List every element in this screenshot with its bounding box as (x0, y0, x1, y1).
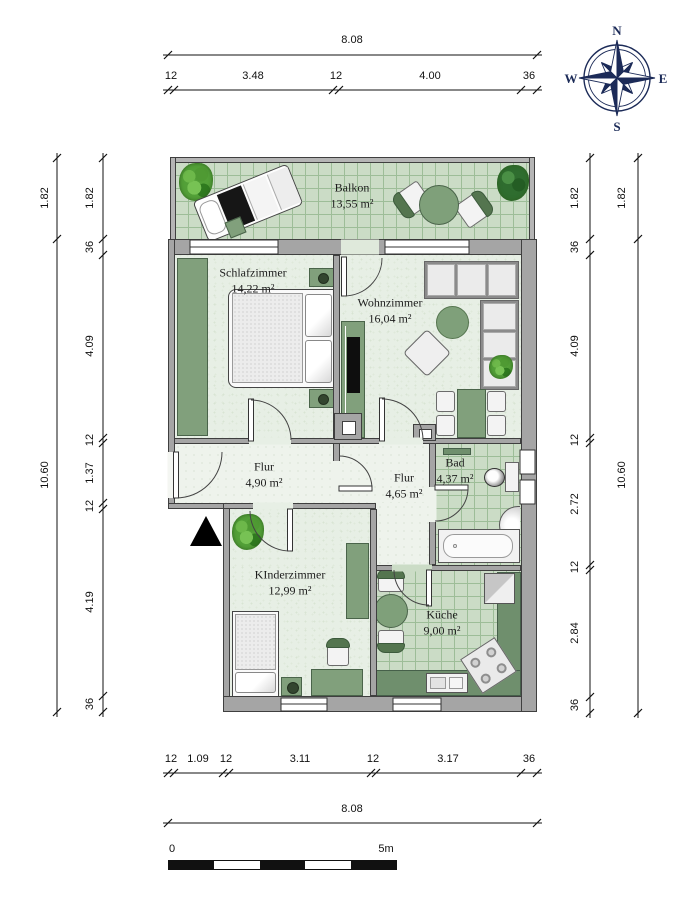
shaft-block (334, 413, 362, 440)
room-label-flur-rechts: Flur 4,65 m² (386, 470, 423, 501)
dining-chair (487, 415, 506, 436)
dim-bottom-seg: 12 (367, 753, 379, 765)
dim-left-outer: 10.60 (39, 461, 51, 489)
wall-kueche-top (376, 565, 521, 571)
dim-top-seg: 3.48 (242, 70, 263, 82)
kinder-wardrobe (346, 543, 369, 619)
scale-segment (169, 861, 214, 869)
room-label-wohnzimmer: Wohnzimmer 16,04 m² (357, 295, 422, 326)
wall-kinder-kueche (370, 509, 377, 696)
dim-left-inner: 36 (84, 241, 96, 253)
round-rug (436, 306, 469, 339)
room-area: 16,04 m² (357, 311, 422, 327)
wall-left-upper (168, 239, 175, 509)
wall-schlaf-wohn (333, 255, 340, 439)
dim-top-seg: 4.00 (419, 70, 440, 82)
dim-left-inner: 1.37 (84, 462, 96, 483)
room-label-bad: Bad 4,37 m² (437, 455, 474, 486)
nightstand (309, 268, 335, 287)
room-label-kueche: Küche 9,00 m² (424, 607, 461, 638)
room-name: Küche (424, 607, 461, 623)
compass-e-label: E (659, 71, 668, 87)
dim-top-total: 8.08 (341, 34, 362, 46)
dim-top-seg: 12 (330, 70, 342, 82)
sofa-cushion (427, 264, 455, 296)
scale-segment (351, 861, 396, 869)
dim-left-inner: 12 (84, 434, 96, 446)
sofa-cushion (483, 303, 516, 330)
compass-w-label: W (565, 71, 578, 87)
kitchen-chair (378, 572, 404, 592)
room-name: Wohnzimmer (357, 295, 422, 311)
nightstand (309, 389, 335, 408)
wall-flur-step (168, 503, 229, 509)
wall-bottom (223, 696, 537, 712)
compass-s-label: S (613, 119, 620, 135)
shaft-opening (419, 429, 432, 439)
single-bed (232, 611, 279, 697)
floorplan-canvas: Balkon 13,55 m² Schlafzimmer 14,22 m² Wo… (0, 0, 700, 910)
room-name: Flur (386, 470, 423, 486)
dim-top-seg: 36 (523, 70, 535, 82)
desk (311, 669, 363, 696)
kitchen-table (374, 594, 408, 628)
dim-bottom-seg: 1.09 (187, 753, 208, 765)
room-area: 14,22 m² (219, 281, 286, 297)
wall-right (521, 239, 537, 712)
lamp (318, 394, 329, 405)
wall-flur-divider (333, 443, 340, 503)
room-area: 4,90 m² (246, 475, 283, 491)
room-name: Balkon (331, 180, 374, 196)
corner-sofa-top (424, 261, 519, 299)
dim-right-inner: 36 (569, 699, 581, 711)
room-name: Flur (246, 459, 283, 475)
dim-right-outer: 1.82 (616, 187, 628, 208)
double-bed (228, 289, 336, 388)
flur-rechts-floor-b (376, 503, 429, 565)
dining-table (457, 389, 486, 438)
room-label-schlafzimmer: Schlafzimmer 14,22 m² (219, 265, 286, 296)
dim-bottom-seg: 36 (523, 753, 535, 765)
room-label-flur-links: Flur 4,90 m² (246, 459, 283, 490)
room-area: 9,00 m² (424, 623, 461, 639)
chair-back (377, 643, 405, 653)
kitchen-chair (378, 630, 404, 650)
sofa-cushion (488, 264, 516, 296)
dim-top-seg: 12 (165, 70, 177, 82)
dim-left-inner: 12 (84, 500, 96, 512)
sofa-cushion (457, 264, 485, 296)
dim-bottom-seg: 12 (165, 753, 177, 765)
toilet-bowl (484, 468, 505, 487)
towel-rail (443, 448, 471, 455)
dim-right-outer: 10.60 (616, 461, 628, 489)
room-name: KInderzimmer (255, 567, 326, 583)
wardrobe (177, 258, 208, 436)
scale-segment (260, 861, 305, 869)
bed-mattress (235, 614, 276, 670)
balcony-table (419, 185, 459, 225)
sink-basin (430, 677, 446, 689)
wall-bad-left (429, 443, 436, 565)
room-area: 4,37 m² (437, 471, 474, 487)
dim-bottom-seg: 3.11 (290, 753, 311, 765)
compass-n-label: N (612, 23, 621, 39)
dim-left-inner: 1.82 (84, 187, 96, 208)
shaft-opening (342, 421, 356, 435)
dim-right-inner: 2.72 (569, 493, 581, 514)
dining-chair (487, 391, 506, 412)
wall-left-lower (223, 503, 230, 712)
dim-right-inner: 36 (569, 241, 581, 253)
bathtub-drain (453, 544, 457, 548)
toilet-tank (505, 462, 519, 492)
dim-left-outer: 1.82 (39, 187, 51, 208)
compass-rose-icon (579, 40, 655, 116)
dim-left-inner: 4.19 (84, 591, 96, 612)
room-name: Schlafzimmer (219, 265, 286, 281)
bed-pillow (305, 294, 332, 337)
bed-pillow (305, 340, 332, 383)
balcony-railing-right (529, 157, 535, 243)
balcony-railing-top (170, 157, 535, 163)
room-label-kinderzimmer: KInderzimmer 12,99 m² (255, 567, 326, 598)
wall-top (168, 239, 537, 255)
fridge (484, 573, 515, 604)
dim-right-inner: 4.09 (569, 335, 581, 356)
tv (347, 337, 360, 393)
shaft-block (413, 424, 436, 441)
balcony-railing-left (170, 157, 176, 243)
dining-chair (436, 415, 455, 436)
burner (484, 645, 498, 659)
dim-right-inner: 12 (569, 434, 581, 446)
sink-basin (449, 677, 463, 689)
dim-left-inner: 4.09 (84, 335, 96, 356)
bathtub (438, 529, 520, 563)
room-label-balkon: Balkon 13,55 m² (331, 180, 374, 211)
scale-end-label: 5m (378, 843, 393, 855)
desk-chair (327, 641, 349, 666)
scale-segment (305, 861, 350, 869)
scale-segment (214, 861, 259, 869)
dim-bottom-seg: 3.17 (437, 753, 458, 765)
scale-bar (168, 860, 397, 870)
room-name: Bad (437, 455, 474, 471)
bed-mattress (232, 293, 303, 383)
dim-right-inner: 1.82 (569, 187, 581, 208)
burner (495, 661, 509, 675)
bed-pillow (235, 672, 276, 693)
lamp (318, 273, 329, 284)
stool-seat (287, 682, 299, 694)
dim-right-inner: 12 (569, 561, 581, 573)
entrance-marker (190, 516, 222, 546)
dining-chair (436, 391, 455, 412)
room-area: 12,99 m² (255, 583, 326, 599)
dim-bottom-total: 8.08 (341, 803, 362, 815)
burner (479, 672, 493, 686)
stool (281, 677, 302, 696)
scale-start-label: 0 (169, 843, 175, 855)
burner (468, 656, 482, 670)
wall-kinder-top (223, 503, 376, 509)
chair-back (326, 638, 350, 648)
room-area: 4,65 m² (386, 486, 423, 502)
room-area: 13,55 m² (331, 196, 374, 212)
dim-left-inner: 36 (84, 698, 96, 710)
dim-bottom-seg: 12 (220, 753, 232, 765)
dim-right-inner: 2.84 (569, 622, 581, 643)
kitchen-sink (426, 673, 468, 693)
